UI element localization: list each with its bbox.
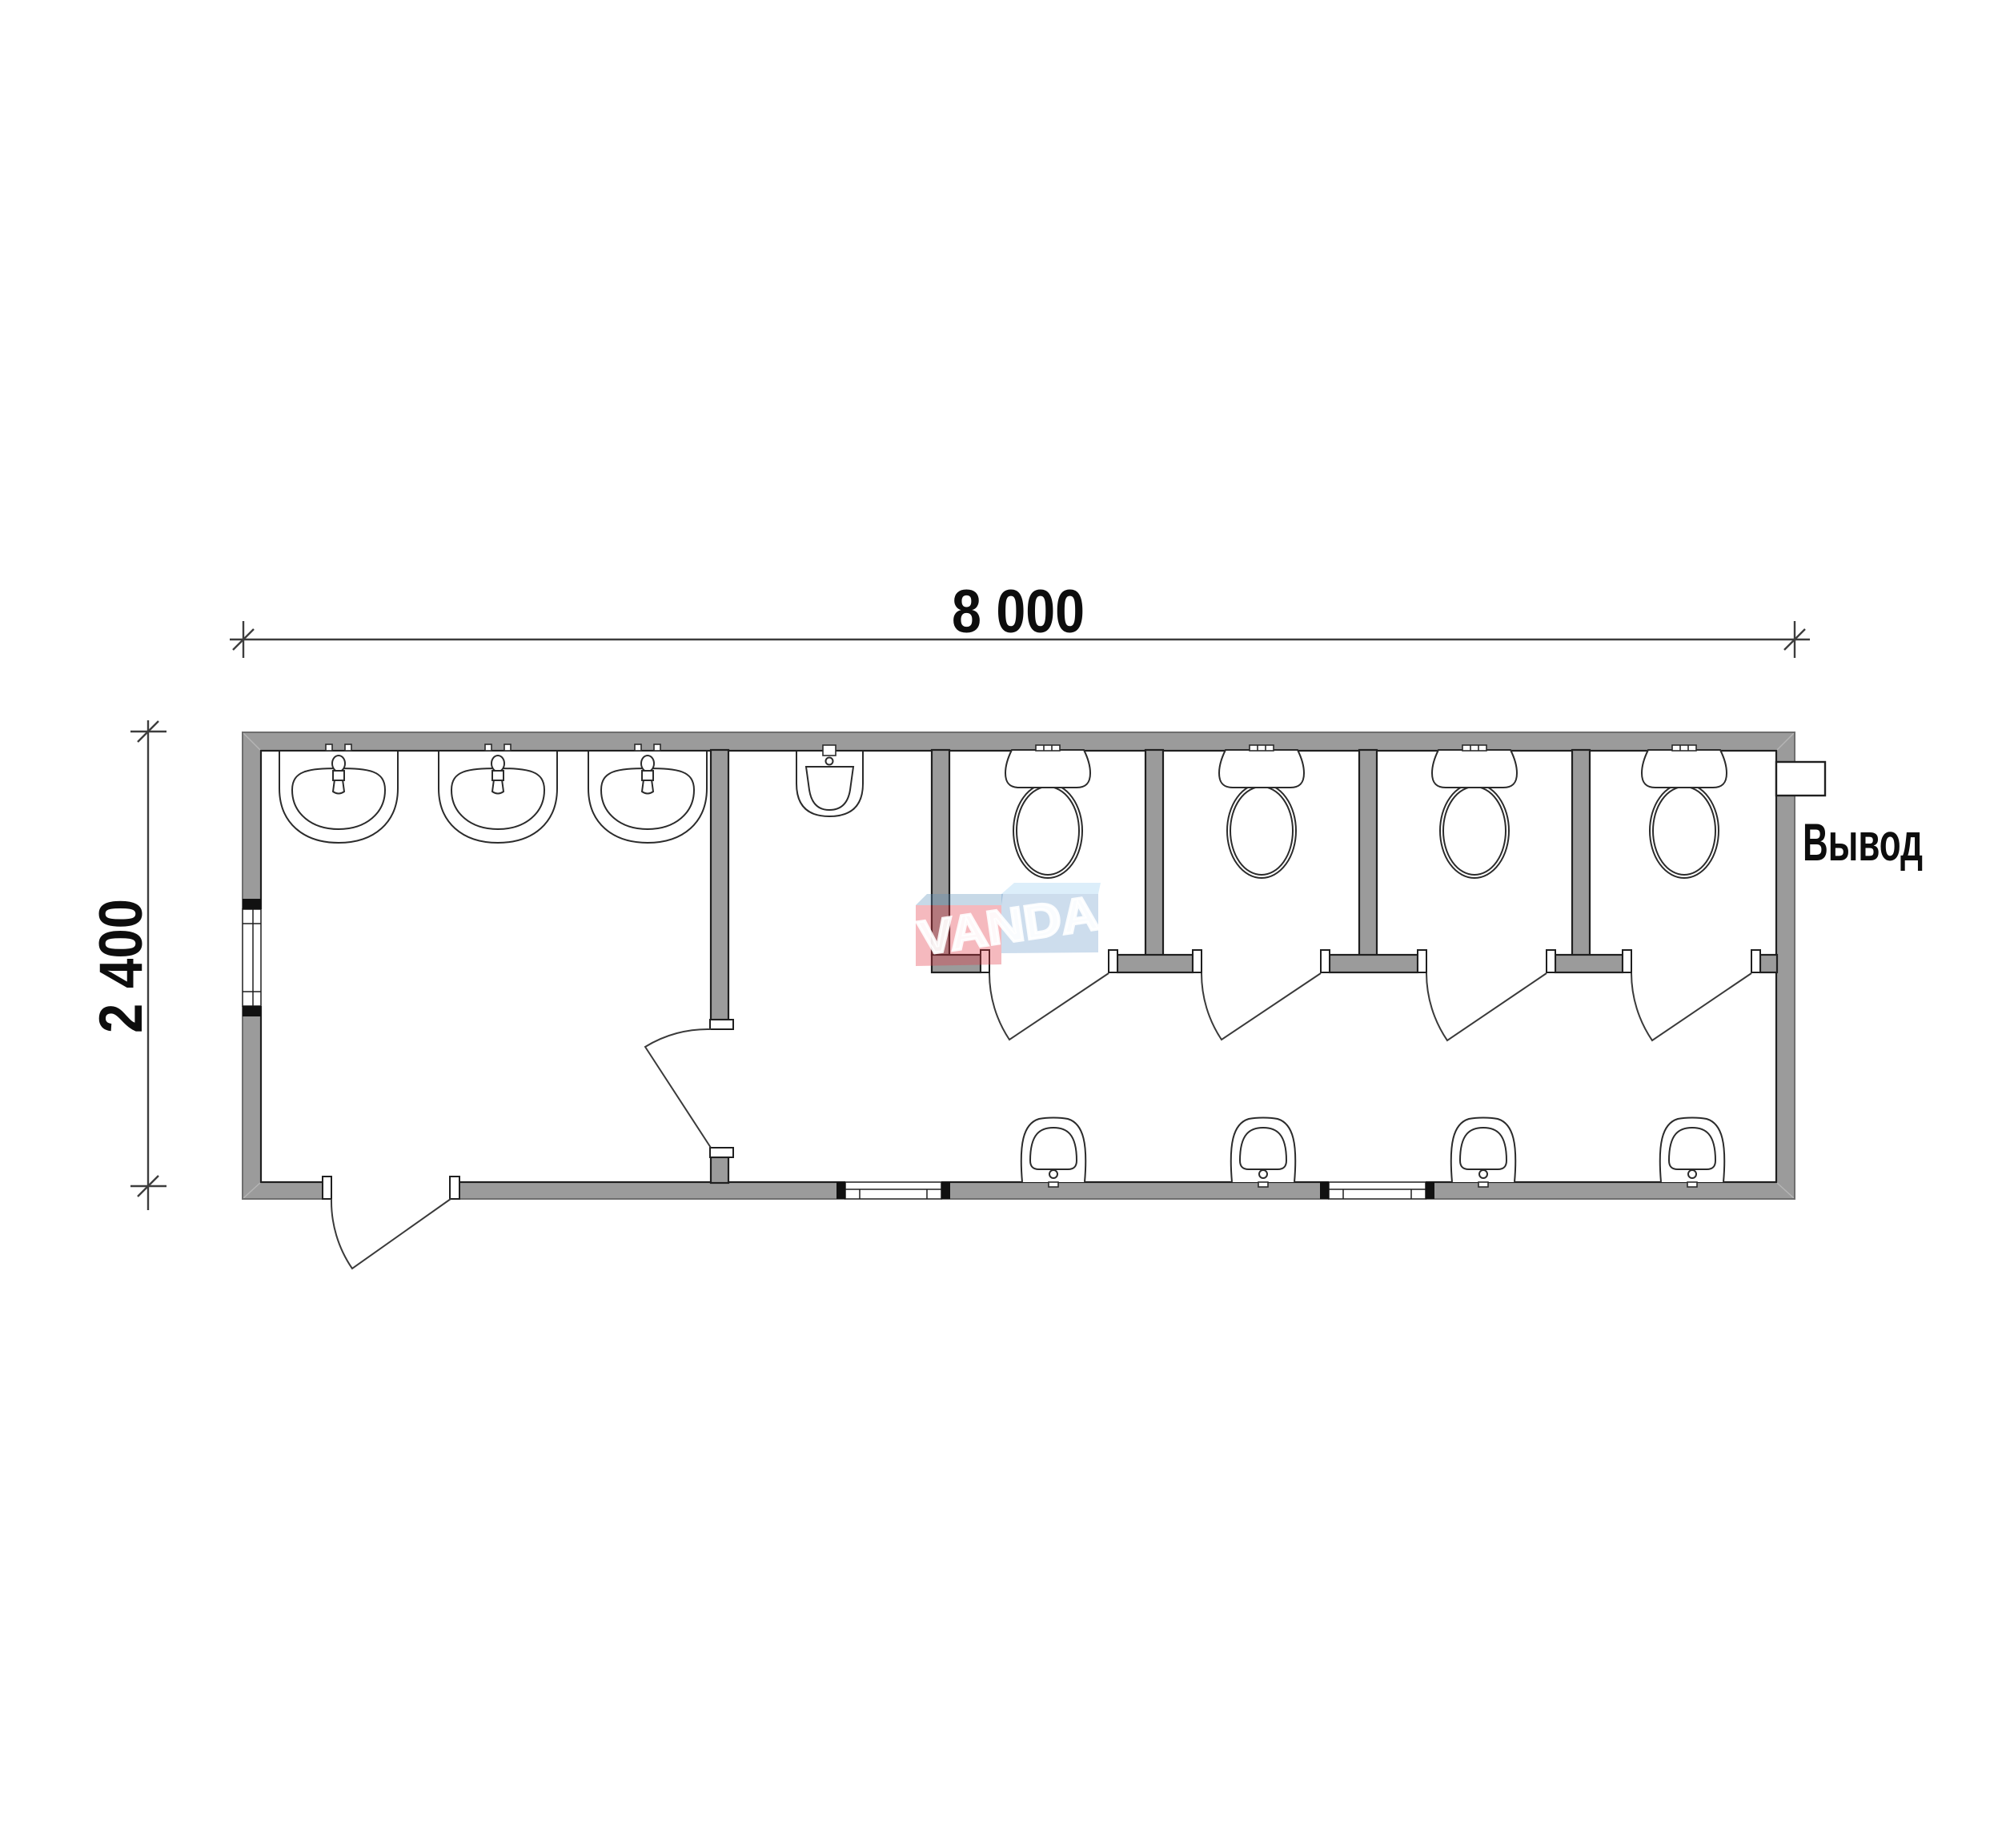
svg-text:Вывод: Вывод	[1803, 812, 1923, 872]
svg-text:2 400: 2 400	[87, 899, 155, 1033]
svg-text:8 000: 8 000	[952, 578, 1085, 646]
